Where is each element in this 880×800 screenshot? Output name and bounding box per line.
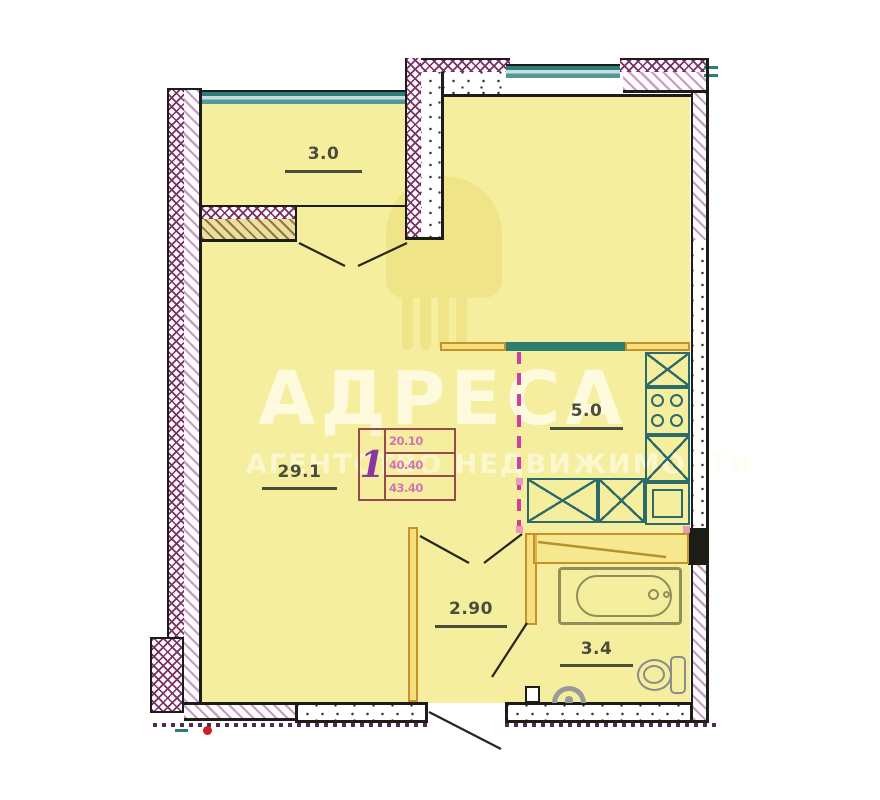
area-underline [560,664,633,667]
balcony-partition-insulation [202,219,297,242]
top-right-wall-hatch [620,58,708,72]
watermark-logo-bar-icon [402,298,413,350]
stove-icon [645,387,690,435]
bathtub-drain-icon [648,589,659,600]
rooms-count: 1 [360,430,386,499]
burner-icon [651,414,664,427]
burner-icon [651,394,664,407]
kitchen-partition-right [625,342,690,351]
area-label-balcony: 3.0 [285,146,362,163]
left-wall-pilaster [150,637,184,713]
right-wall-outer-line [706,58,709,723]
kitchen-top-wall-line [444,94,693,97]
central-column-concrete [421,72,444,240]
burner-icon [670,394,683,407]
kitchen-window [506,64,620,78]
area-underline [262,487,337,490]
burner-icon [670,414,683,427]
balcony-door-threshold [297,205,409,207]
area-underline [550,427,623,430]
bathtub-overflow-icon [663,591,670,598]
toilet-bowl-icon [643,665,665,684]
washbasin-drain-icon [565,696,573,703]
teal-marker-icon [175,729,188,732]
area-underline [285,170,362,173]
area-label-hallway: 2.90 [435,601,507,618]
red-marker-icon [203,726,212,735]
bathtub-icon [558,567,682,625]
area-label-bathroom: 3.4 [560,641,633,658]
info-value-row: 43.40 [386,477,454,499]
kitchen-partition-glass [506,342,625,351]
kitchen-partition-left [440,342,506,351]
right-wall-dark-segment [688,528,706,565]
kitchen-counter-icon [645,352,690,387]
left-outer-wall [167,88,184,712]
entrance-niche-concrete [444,72,509,94]
right-wall-upper [691,93,706,240]
bottom-wall-left-diag [184,702,295,721]
info-value-row: 20.10 [386,430,454,454]
kitchen-counter-icon [527,478,598,523]
balcony-window [202,90,406,104]
kitchen-counter-icon [598,478,645,523]
toilet-icon [637,659,672,691]
pink-node-icon [516,478,523,485]
sink-basin-icon [652,489,683,518]
toilet-tank-icon [670,656,686,694]
kitchen-sink-icon [645,482,690,525]
wall-stub [525,686,540,703]
entrance-door-leaf [429,712,501,749]
area-label-kitchen: 5.0 [550,403,623,420]
top-right-wall-diag [623,72,708,93]
left-inner-wall [184,88,202,712]
right-wall-concrete [691,240,706,528]
bottom-boundary-dotted-line [505,723,718,727]
watermark-logo-bar-icon [420,298,431,350]
bottom-wall-left-concrete [295,702,428,723]
kitchen-counter-icon [645,435,690,482]
bottom-boundary-dotted-line [153,723,430,727]
info-value-row: 40.40 [386,454,454,478]
area-label-living-room: 29.1 [262,464,337,481]
kitchen-zone-dashed-line [517,352,521,532]
central-column-hatch [405,58,421,240]
hallway-wall-left [408,527,418,702]
bathroom-top-wall [533,533,689,564]
right-wall-lower [691,565,706,723]
floor-plan-canvas: АДРЕСА АГЕНТСТВО НЕДВИЖИМОСТИ [0,0,880,800]
area-underline [435,625,507,628]
info-values: 20.10 40.40 43.40 [386,430,454,499]
apartment-info-box: 1 20.10 40.40 43.40 [358,428,456,501]
watermark-logo-icon [386,176,502,298]
bottom-wall-right-concrete [505,702,693,723]
pink-node-icon [683,526,690,533]
pink-node-icon [516,526,523,533]
balcony-partition-hatch [202,205,297,219]
